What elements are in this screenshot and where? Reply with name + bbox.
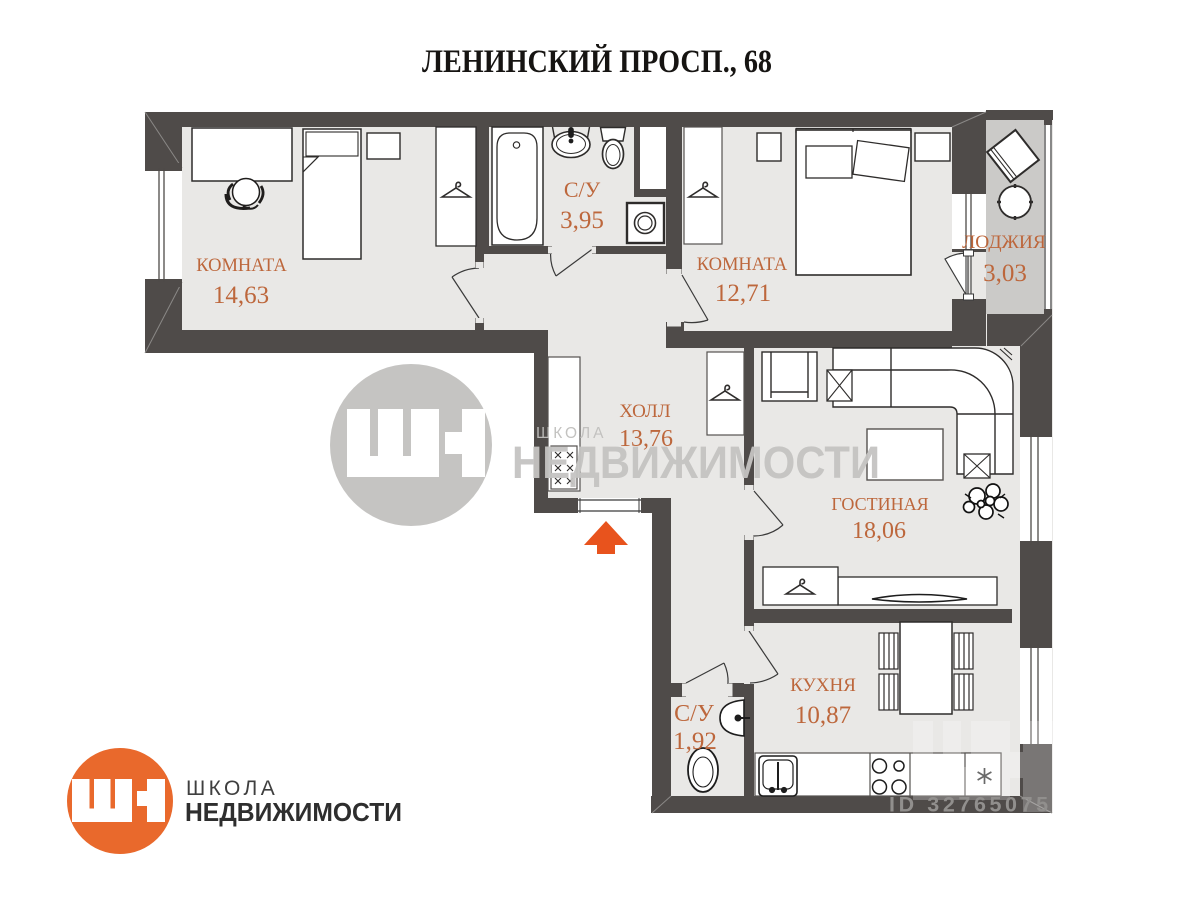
svg-text:10,87: 10,87 bbox=[795, 702, 851, 729]
svg-text:ХОЛЛ: ХОЛЛ bbox=[619, 401, 670, 422]
svg-text:18,06: 18,06 bbox=[852, 518, 906, 544]
svg-text:КУХНЯ: КУХНЯ bbox=[790, 675, 856, 696]
svg-text:НЕДВИЖИМОСТИ: НЕДВИЖИМОСТИ bbox=[512, 437, 880, 488]
svg-text:С/У: С/У bbox=[674, 701, 714, 727]
svg-text:14,63: 14,63 bbox=[213, 282, 269, 309]
svg-text:ЛЕНИНСКИЙ ПРОСП., 68: ЛЕНИНСКИЙ ПРОСП., 68 bbox=[422, 43, 772, 80]
svg-text:С/У: С/У bbox=[564, 177, 601, 202]
svg-text:12,71: 12,71 bbox=[715, 280, 771, 307]
svg-text:ID 32765075: ID 32765075 bbox=[889, 793, 1052, 817]
svg-text:КОМНАТА: КОМНАТА bbox=[196, 256, 287, 276]
svg-text:1,92: 1,92 bbox=[673, 728, 717, 755]
svg-text:ШКОЛА: ШКОЛА bbox=[186, 777, 278, 800]
svg-text:ГОСТИНАЯ: ГОСТИНАЯ bbox=[831, 494, 928, 514]
svg-text:КОМНАТА: КОМНАТА bbox=[697, 255, 788, 275]
svg-text:3,95: 3,95 bbox=[560, 207, 604, 234]
svg-text:3,03: 3,03 bbox=[983, 260, 1027, 287]
svg-text:ЛОДЖИЯ: ЛОДЖИЯ bbox=[962, 232, 1046, 253]
svg-text:НЕДВИЖИМОСТИ: НЕДВИЖИМОСТИ bbox=[185, 799, 402, 827]
